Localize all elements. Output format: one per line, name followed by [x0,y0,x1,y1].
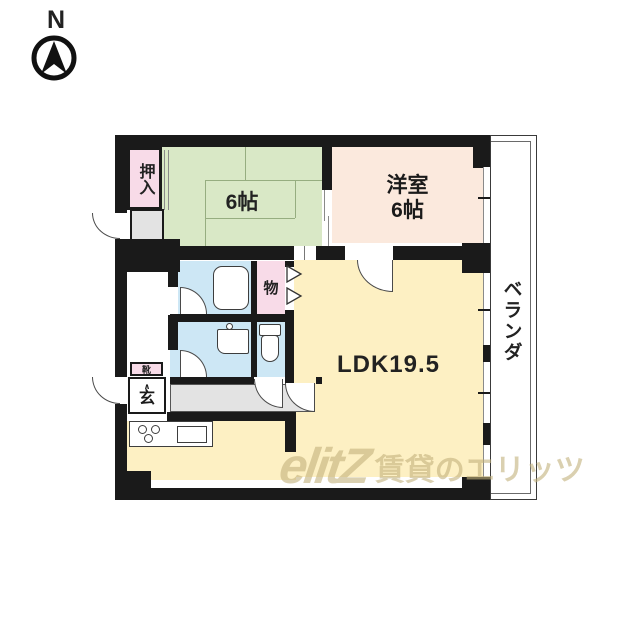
door-arc-exterior-storage [92,213,120,239]
opening-tatami-ldk [294,246,316,260]
sliding-door-mark [304,246,305,260]
wall [115,135,492,147]
exterior-storage-box [130,209,164,241]
tatami-line [205,218,295,219]
compass-icon [30,34,78,82]
wall [170,377,254,384]
kitchen-sink-icon [177,426,207,443]
bathtub-icon [213,266,249,310]
floor-plan: N [0,0,640,640]
sliding-door-panel [324,190,325,221]
faucet-icon [226,323,233,330]
western-room-label-line2: 6帖 [391,198,424,223]
tatami-label: 6帖 [202,188,282,214]
washbasin-icon [217,329,249,354]
tatami-line [205,180,322,181]
shoe-cabinet: 靴 [130,362,163,376]
fusuma-panel [168,150,169,210]
wall [168,272,178,287]
wall [115,488,492,500]
wall [167,412,296,421]
western-room-label: 洋室 6帖 [332,165,483,231]
ldk-label: LDK19.5 [294,350,483,380]
tatami-line [295,180,296,218]
stove-burner-icon [144,434,153,443]
fusuma-panel [164,150,165,210]
stove-burner-icon [138,425,147,434]
sliding-door-panel [328,216,329,246]
entrance-label: 玄 [139,390,155,407]
storage-label: 物 [257,275,285,299]
compass-north-label: N [36,6,76,34]
opening-western-door [345,246,393,260]
closet-label: 押入 [130,153,159,205]
western-room-label-line1: 洋室 [387,173,429,198]
tatami-line [245,147,246,180]
wall [285,412,296,452]
wall [115,135,127,213]
wall [170,314,294,322]
wall [285,310,294,384]
wall [115,471,151,500]
wall [115,239,180,272]
folding-door-icon [286,265,303,305]
door-arc-entrance [92,377,120,404]
veranda-label: ベランダ [498,262,524,380]
entrance-genkan: ∧ 玄 [128,377,166,414]
toilet-bowl-icon [261,335,279,362]
wall [462,477,492,500]
stove-burner-icon [151,425,160,434]
